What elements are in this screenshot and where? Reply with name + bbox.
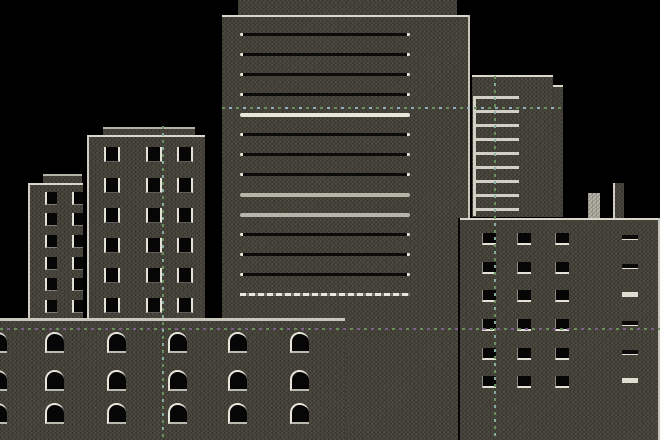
window-slit: [622, 378, 638, 383]
antenna-right: [613, 183, 624, 219]
ladder-building-top-edge: [472, 75, 553, 77]
window-band: [240, 153, 410, 156]
guide-v-left: [162, 126, 164, 440]
window: [104, 238, 120, 253]
window: [107, 332, 126, 353]
window-slit: [622, 264, 638, 269]
window-band: [240, 293, 410, 296]
window: [0, 332, 7, 353]
window: [146, 268, 162, 283]
small-building-top-edge: [28, 183, 83, 185]
tower-parapet: [238, 0, 457, 16]
window: [290, 332, 309, 353]
window-slit: [622, 350, 638, 355]
ladder-building: [472, 75, 553, 217]
guide-v-right: [494, 76, 496, 440]
central-tower-top-edge: [222, 15, 470, 17]
window: [146, 178, 162, 193]
window: [177, 208, 193, 223]
guide-h-upper: [222, 107, 563, 109]
right-building-top-edge: [458, 218, 660, 220]
small-parapet-topDim-edge: [43, 174, 82, 176]
fire-escape-rung: [473, 110, 519, 113]
antenna-right-left-edge: [613, 183, 615, 219]
window-band: [240, 233, 410, 236]
window: [177, 268, 193, 283]
window: [45, 278, 57, 291]
window: [72, 300, 83, 313]
fire-escape-rung: [473, 208, 519, 211]
window: [228, 332, 247, 353]
window: [555, 290, 569, 302]
window: [146, 298, 162, 313]
window-band: [240, 53, 410, 56]
window: [104, 208, 120, 223]
window: [555, 348, 569, 360]
window-band: [240, 73, 410, 76]
window: [177, 298, 193, 313]
window: [168, 370, 187, 391]
window: [228, 370, 247, 391]
window: [228, 403, 247, 424]
window: [555, 262, 569, 274]
leftmid-building-top-edge: [87, 135, 205, 137]
leftmid-parapet-topDim-edge: [103, 127, 195, 129]
window-band: [240, 253, 410, 256]
fire-escape-rung: [473, 124, 519, 127]
window-band: [240, 93, 410, 96]
window: [72, 213, 83, 226]
window: [107, 403, 126, 424]
fire-escape-rung: [473, 166, 519, 169]
window: [45, 332, 64, 353]
window: [45, 213, 57, 226]
window: [45, 235, 57, 248]
window: [45, 403, 64, 424]
window: [107, 370, 126, 391]
window: [45, 370, 64, 391]
fire-escape-rail: [473, 96, 476, 216]
window: [168, 332, 187, 353]
window: [146, 208, 162, 223]
window-band: [240, 193, 410, 197]
window: [72, 257, 83, 270]
window: [45, 192, 57, 205]
window: [104, 147, 120, 162]
window: [290, 370, 309, 391]
window-band: [240, 173, 410, 176]
window: [517, 290, 531, 302]
window-band: [240, 213, 410, 217]
window: [290, 403, 309, 424]
window: [177, 178, 193, 193]
window-slit: [622, 292, 638, 297]
window: [517, 348, 531, 360]
window: [168, 403, 187, 424]
guide-h-lower: [0, 328, 660, 330]
window: [45, 300, 57, 313]
window: [104, 298, 120, 313]
window-band: [240, 273, 410, 276]
fire-escape-rung: [473, 180, 519, 183]
window: [72, 278, 83, 291]
window: [0, 403, 7, 424]
window: [72, 235, 83, 248]
foreground-building-topThick-edge: [0, 318, 345, 321]
window: [104, 268, 120, 283]
window-band: [240, 113, 410, 117]
foreground-building: [0, 318, 345, 440]
window: [517, 262, 531, 274]
antenna-left: [588, 193, 600, 219]
window: [72, 192, 83, 205]
window-slit: [622, 235, 638, 240]
fire-escape-rung: [473, 138, 519, 141]
fire-escape-rung: [473, 96, 519, 99]
window-band: [240, 133, 410, 136]
window: [146, 238, 162, 253]
window: [555, 376, 569, 388]
window: [104, 178, 120, 193]
fire-escape-rung: [473, 194, 519, 197]
window: [517, 376, 531, 388]
window: [146, 147, 162, 162]
fire-escape-rung: [473, 152, 519, 155]
window: [45, 257, 57, 270]
window: [177, 238, 193, 253]
window-slit: [622, 321, 638, 326]
window-band: [240, 33, 410, 36]
city-scene: [0, 0, 660, 440]
window: [177, 147, 193, 162]
window: [0, 370, 7, 391]
window: [517, 233, 531, 245]
window: [555, 233, 569, 245]
